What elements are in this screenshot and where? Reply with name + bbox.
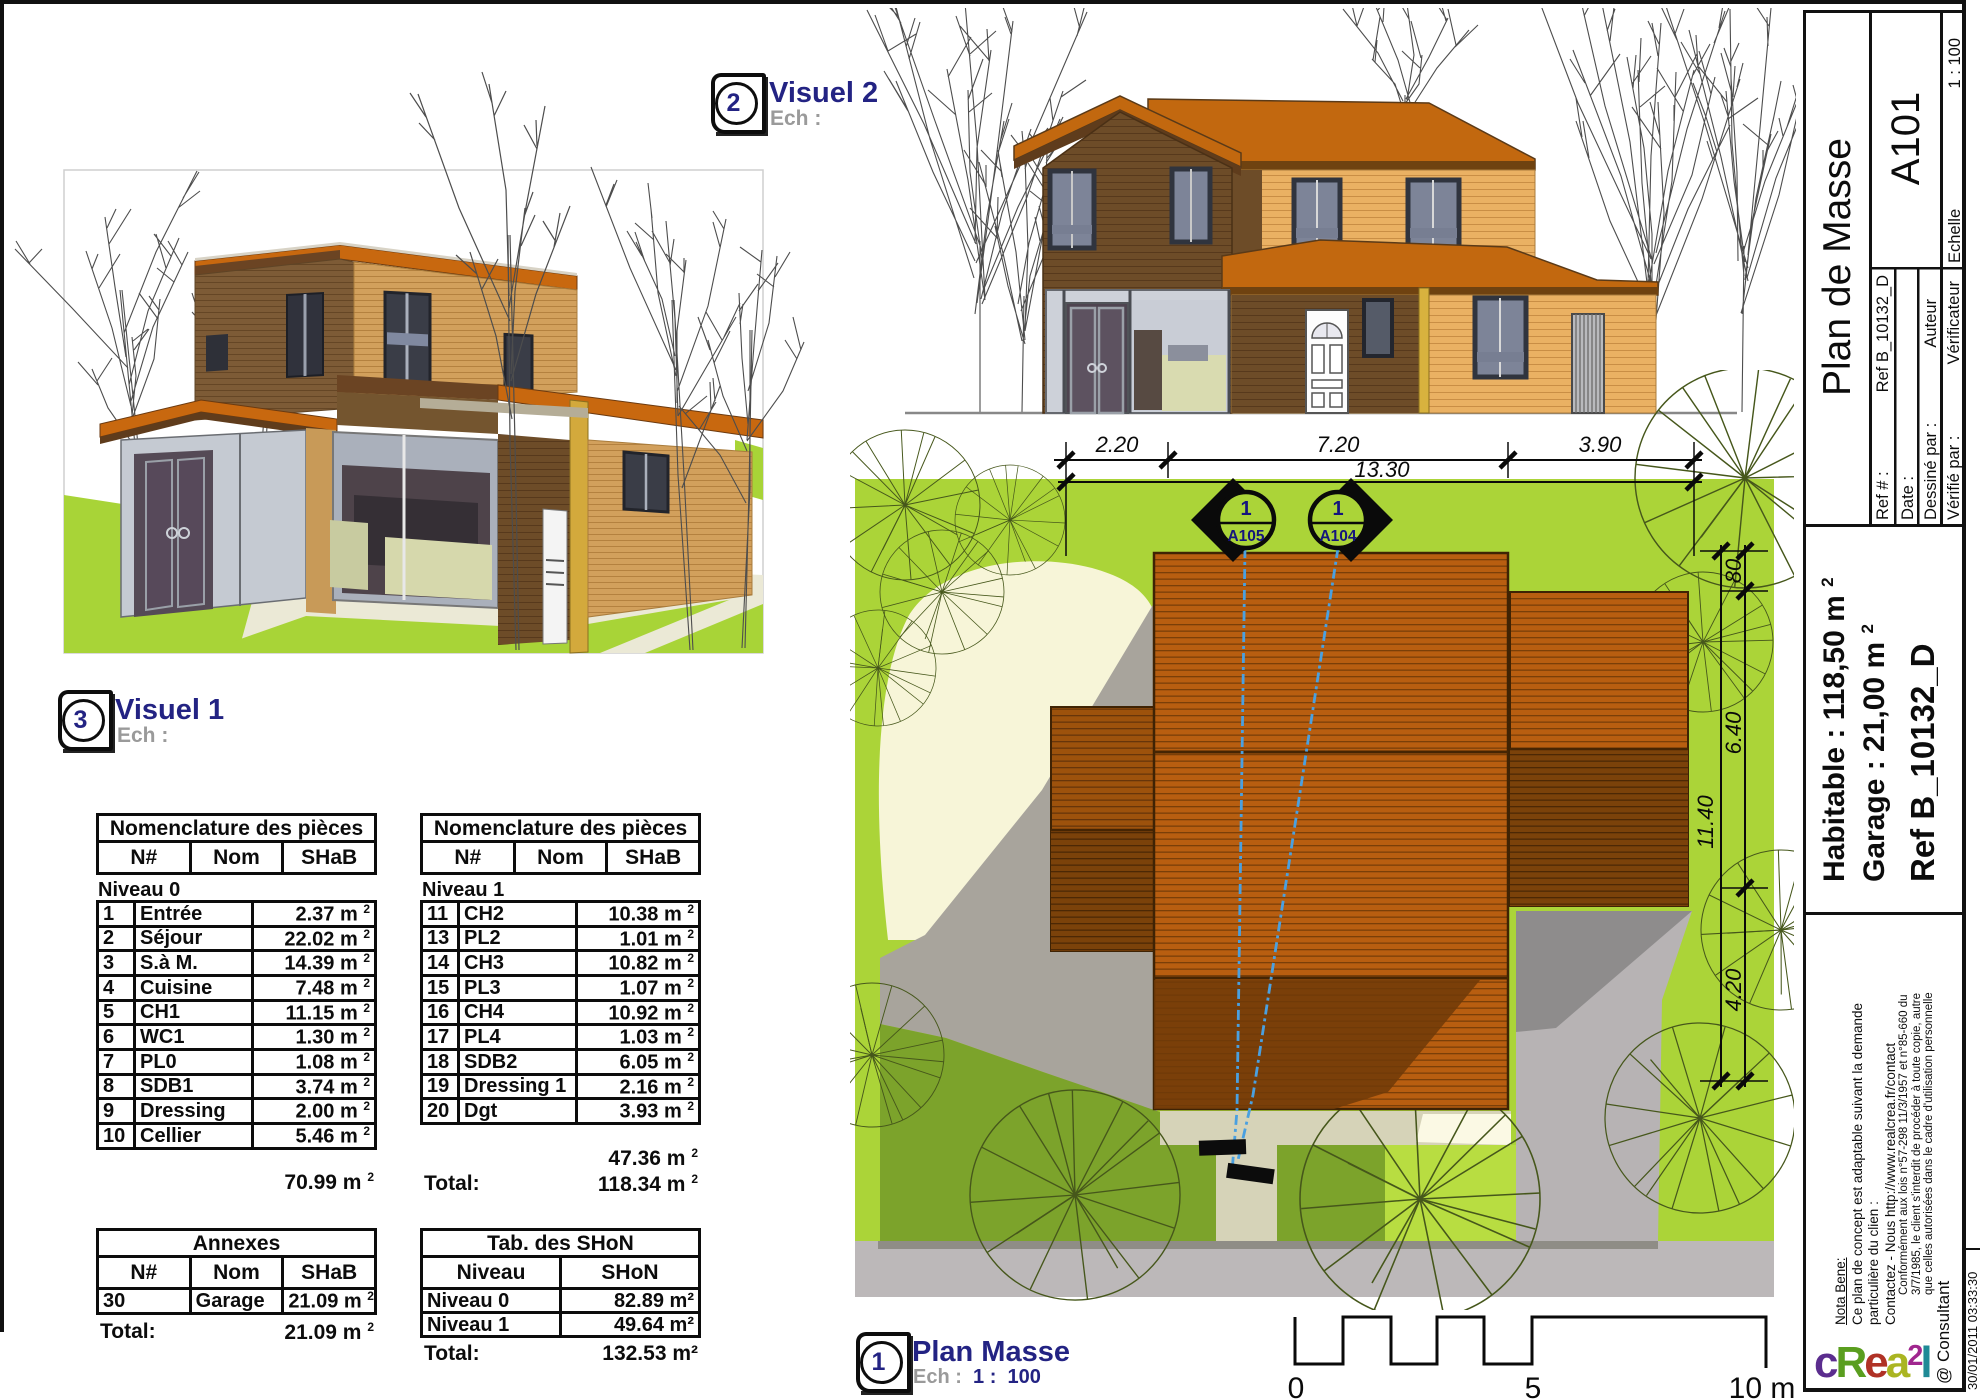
svg-text:80: 80 [1721,558,1746,583]
svg-text:2.20: 2.20 [1095,432,1140,457]
svg-text:7.20: 7.20 [1317,432,1361,457]
svg-text:1: 1 [1332,498,1343,520]
svg-text:1: 1 [1240,498,1251,520]
svg-text:0: 0 [1288,1372,1305,1400]
svg-text:11.40: 11.40 [1693,795,1718,849]
svg-text:A104: A104 [1319,528,1356,545]
svg-text:A105: A105 [1227,528,1264,545]
svg-text:13.30: 13.30 [1354,457,1410,482]
svg-text:6.40: 6.40 [1721,711,1746,755]
svg-text:4.20: 4.20 [1721,968,1746,1012]
svg-text:10 m: 10 m [1729,1372,1796,1400]
svg-text:3.90: 3.90 [1579,432,1623,457]
svg-text:5: 5 [1525,1372,1542,1400]
